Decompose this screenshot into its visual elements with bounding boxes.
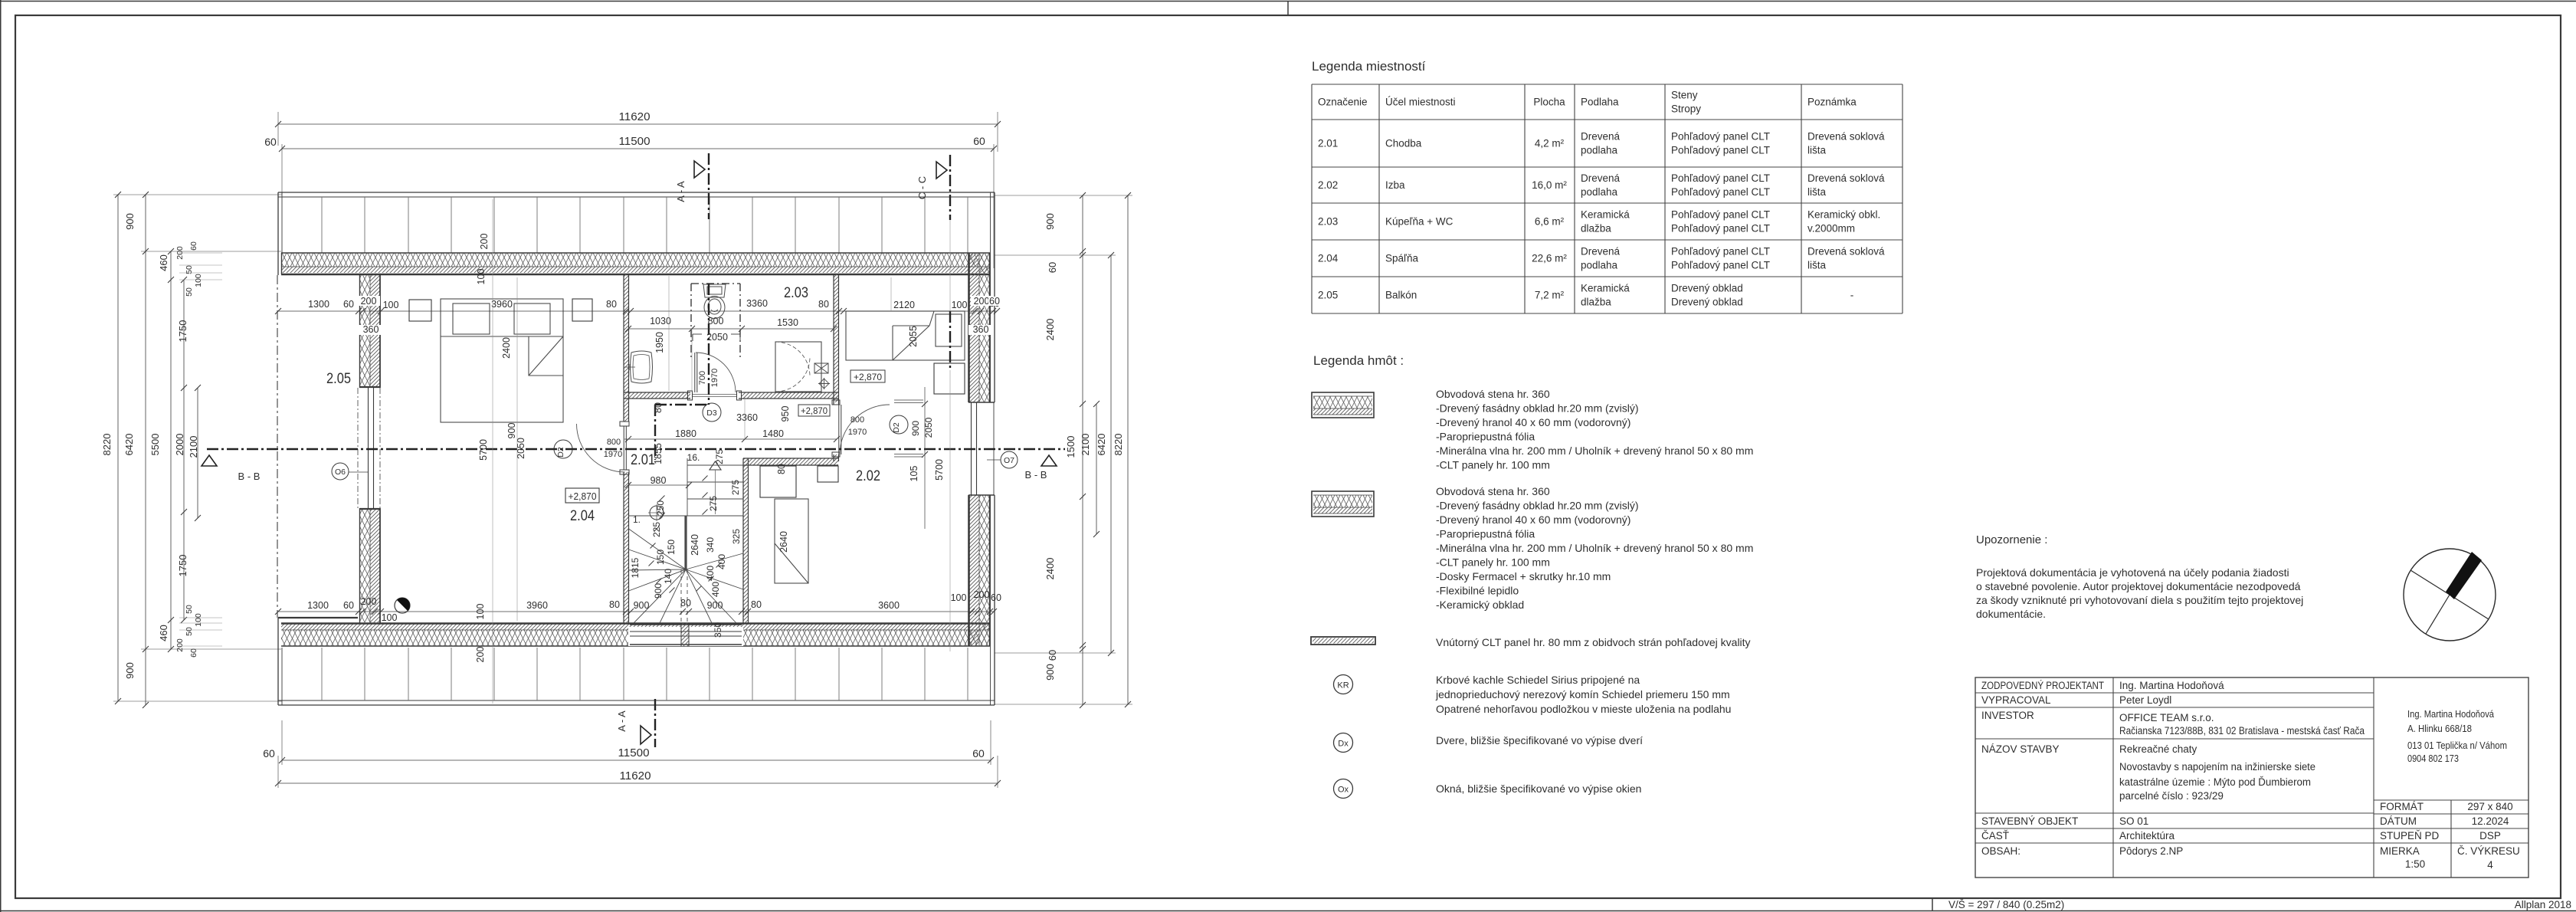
- svg-text:Drevená soklová: Drevená soklová: [1807, 131, 1885, 143]
- svg-text:katastrálne územie : Mýto pod: katastrálne územie : Mýto pod Ďumbierom: [2119, 776, 2311, 788]
- svg-text:-Drevený fasádny obklad hr.20: -Drevený fasádny obklad hr.20 mm (zvislý…: [1436, 500, 1639, 512]
- svg-text:900: 900: [653, 583, 664, 599]
- svg-text:400: 400: [705, 566, 716, 581]
- svg-text:Račianska 7123/88B, 831 02 Bra: Račianska 7123/88B, 831 02 Bratislava - …: [2119, 725, 2365, 736]
- svg-text:100: 100: [383, 300, 399, 310]
- svg-text:50: 50: [185, 627, 194, 636]
- svg-text:80: 80: [653, 402, 664, 413]
- svg-text:360: 360: [363, 324, 379, 335]
- svg-text:Označenie: Označenie: [1318, 97, 1368, 108]
- svg-text:NÁZOV STAVBY: NÁZOV STAVBY: [1981, 743, 2060, 755]
- svg-text:VYPRACOVAL: VYPRACOVAL: [1981, 694, 2051, 706]
- svg-text:Podlaha: Podlaha: [1581, 97, 1619, 108]
- svg-text:1750: 1750: [177, 320, 188, 343]
- svg-text:Keramická: Keramická: [1581, 209, 1630, 221]
- svg-text:MIERKA: MIERKA: [2380, 845, 2420, 857]
- svg-text:Steny: Steny: [1671, 90, 1698, 101]
- svg-text:460: 460: [158, 625, 169, 641]
- svg-text:8220: 8220: [101, 434, 113, 456]
- svg-text:Pohľadový panel CLT: Pohľadový panel CLT: [1671, 172, 1770, 184]
- svg-text:325: 325: [731, 529, 742, 544]
- svg-text:ČASŤ: ČASŤ: [1981, 830, 2009, 841]
- svg-text:-Paropriepustná fólia: -Paropriepustná fólia: [1436, 528, 1535, 540]
- svg-text:3960: 3960: [526, 600, 548, 611]
- svg-text:Legenda miestností: Legenda miestností: [1312, 59, 1426, 74]
- svg-text:Pohľadový panel CLT: Pohľadový panel CLT: [1671, 145, 1770, 156]
- svg-text:Drevená soklová: Drevená soklová: [1807, 246, 1885, 258]
- svg-text:2050: 2050: [706, 332, 728, 343]
- svg-text:4,2 m²: 4,2 m²: [1535, 138, 1565, 149]
- svg-text:v.2000mm: v.2000mm: [1807, 223, 1855, 235]
- svg-text:460: 460: [158, 254, 169, 271]
- svg-text:16.: 16.: [687, 452, 700, 463]
- svg-text:50: 50: [185, 287, 194, 297]
- svg-text:2100: 2100: [1080, 434, 1091, 456]
- svg-text:100: 100: [475, 604, 486, 620]
- svg-text:-: -: [1850, 290, 1854, 301]
- svg-text:1480: 1480: [762, 428, 784, 439]
- svg-text:3360: 3360: [746, 298, 768, 309]
- svg-text:980: 980: [651, 475, 667, 486]
- svg-text:80: 80: [776, 464, 787, 474]
- svg-text:lišta: lišta: [1807, 186, 1826, 198]
- svg-text:200: 200: [361, 596, 377, 607]
- svg-text:2.01: 2.01: [631, 452, 655, 468]
- svg-text:5700: 5700: [934, 459, 945, 481]
- svg-text:150: 150: [666, 540, 677, 555]
- svg-text:-Drevený hranol 40 x 60 mm (vo: -Drevený hranol 40 x 60 mm (vodorovný): [1436, 416, 1630, 428]
- svg-text:Allplan 2018: Allplan 2018: [2515, 899, 2571, 910]
- svg-text:Drevený obklad: Drevený obklad: [1671, 297, 1743, 308]
- svg-text:400: 400: [716, 554, 727, 569]
- svg-text:5700: 5700: [478, 439, 489, 461]
- svg-text:80: 80: [751, 599, 762, 610]
- svg-text:4: 4: [2487, 859, 2493, 871]
- svg-text:Peter Loydl: Peter Loydl: [2119, 694, 2171, 706]
- svg-text:013 01 Teplička n/ Váhom: 013 01 Teplička n/ Váhom: [2407, 740, 2507, 751]
- svg-text:Účel miestnosti: Účel miestnosti: [1385, 97, 1456, 108]
- svg-text:2.04: 2.04: [570, 508, 595, 524]
- svg-text:200: 200: [974, 589, 990, 600]
- svg-text:80: 80: [606, 299, 617, 310]
- svg-text:Balkón: Balkón: [1385, 290, 1417, 301]
- svg-text:800: 800: [607, 438, 621, 447]
- svg-text:1500: 1500: [1065, 436, 1077, 458]
- svg-text:2.01: 2.01: [1318, 138, 1338, 149]
- svg-text:80: 80: [680, 598, 691, 609]
- svg-text:225: 225: [651, 522, 662, 537]
- svg-text:2.03: 2.03: [1318, 216, 1338, 228]
- svg-text:950: 950: [780, 406, 791, 422]
- svg-text:2400: 2400: [501, 337, 512, 359]
- svg-text:za škody vzniknuté pri vyhotov: za škody vzniknuté pri vyhotovovaní diel…: [1976, 594, 2303, 606]
- svg-text:O6: O6: [335, 467, 346, 477]
- svg-text:Dx: Dx: [1338, 740, 1349, 749]
- svg-text:900: 900: [124, 662, 136, 679]
- svg-text:dlažba: dlažba: [1581, 297, 1611, 308]
- svg-text:200: 200: [175, 638, 185, 652]
- svg-text:Spáľňa: Spáľňa: [1385, 253, 1418, 264]
- svg-text:60: 60: [973, 135, 985, 147]
- svg-text:60: 60: [343, 600, 354, 611]
- svg-text:7,2 m²: 7,2 m²: [1535, 290, 1565, 301]
- svg-text:60: 60: [264, 136, 277, 148]
- svg-text:60: 60: [1047, 650, 1058, 661]
- svg-text:Obvodová stena hr. 360: Obvodová stena hr. 360: [1436, 485, 1550, 497]
- svg-text:-Paropriepustná fólia: -Paropriepustná fólia: [1436, 431, 1535, 443]
- svg-text:3360: 3360: [736, 412, 758, 423]
- svg-text:DSP: DSP: [2479, 830, 2501, 841]
- svg-text:Izba: Izba: [1385, 179, 1405, 191]
- svg-text:200: 200: [479, 234, 490, 250]
- svg-text:OBSAH:: OBSAH:: [1981, 845, 2020, 857]
- svg-text:Legenda hmôt :: Legenda hmôt :: [1313, 353, 1404, 368]
- svg-text:0904 802 173: 0904 802 173: [2407, 753, 2459, 764]
- svg-text:350: 350: [713, 622, 723, 638]
- svg-text:B - B: B - B: [238, 471, 261, 482]
- svg-text:1970: 1970: [710, 369, 719, 387]
- svg-text:A - A: A - A: [616, 710, 628, 732]
- svg-text:o stavebné povolenie. Autor pr: o stavebné povolenie. Autor projektovej …: [1976, 580, 2301, 592]
- svg-text:V/Š = 297 / 840 (0.25m2): V/Š = 297 / 840 (0.25m2): [1948, 899, 2064, 910]
- svg-text:800: 800: [708, 316, 724, 326]
- svg-text:A. Hlinku 668/18: A. Hlinku 668/18: [2407, 723, 2472, 734]
- svg-text:DÁTUM: DÁTUM: [2380, 815, 2417, 827]
- svg-text:dlažba: dlažba: [1581, 223, 1611, 235]
- svg-text:1300: 1300: [308, 299, 329, 310]
- svg-text:Drevený obklad: Drevený obklad: [1671, 283, 1743, 294]
- svg-text:1300: 1300: [307, 600, 329, 611]
- svg-text:1530: 1530: [777, 317, 798, 328]
- svg-text:11500: 11500: [618, 747, 650, 759]
- svg-text:FORMÁT: FORMÁT: [2380, 801, 2424, 812]
- svg-text:Vnútorný CLT panel hr. 80 mm z: Vnútorný CLT panel hr. 80 mm z obidvoch …: [1436, 636, 1751, 648]
- svg-text:2.02: 2.02: [1318, 179, 1338, 191]
- svg-text:1030: 1030: [650, 316, 671, 326]
- svg-text:-Flexibilné lepidlo: -Flexibilné lepidlo: [1436, 585, 1519, 597]
- svg-text:3960: 3960: [491, 299, 513, 310]
- svg-text:11620: 11620: [620, 770, 651, 782]
- svg-text:ZODPOVEDNÝ PROJEKTANT: ZODPOVEDNÝ PROJEKTANT: [1981, 680, 2104, 691]
- svg-text:+2,870: +2,870: [801, 407, 828, 416]
- svg-text:2100: 2100: [188, 436, 199, 458]
- svg-text:D2: D2: [892, 422, 901, 433]
- svg-text:Pôdorys 2.NP: Pôdorys 2.NP: [2119, 845, 2183, 857]
- svg-text:900: 900: [506, 423, 517, 439]
- svg-text:Drevená soklová: Drevená soklová: [1807, 172, 1885, 184]
- svg-text:700: 700: [698, 371, 707, 385]
- svg-text:-Keramický obklad: -Keramický obklad: [1436, 599, 1524, 611]
- svg-text:140: 140: [663, 569, 673, 584]
- svg-text:200: 200: [361, 296, 377, 307]
- svg-text:1.: 1.: [633, 514, 641, 525]
- svg-text:900: 900: [634, 600, 650, 611]
- svg-text:16,0 m²: 16,0 m²: [1532, 179, 1567, 191]
- svg-text:900: 900: [1044, 664, 1056, 681]
- svg-text:2.04: 2.04: [1318, 253, 1339, 264]
- svg-text:275: 275: [708, 496, 719, 511]
- svg-text:-Drevený hranol 40 x 60 mm (vo: -Drevený hranol 40 x 60 mm (vodorovný): [1436, 513, 1630, 526]
- svg-text:60: 60: [263, 747, 275, 759]
- svg-text:60: 60: [991, 592, 1001, 603]
- svg-text:Poznámka: Poznámka: [1807, 97, 1857, 108]
- svg-text:Rekreačné chaty: Rekreačné chaty: [2119, 743, 2197, 755]
- svg-text:Pohľadový panel CLT: Pohľadový panel CLT: [1671, 260, 1770, 271]
- svg-text:Č. VÝKRESU: Č. VÝKRESU: [2457, 845, 2520, 857]
- svg-text:2.02: 2.02: [856, 468, 880, 484]
- svg-text:Dvere, bližšie špecifikované v: Dvere, bližšie špecifikované vo výpise d…: [1436, 734, 1643, 746]
- svg-text:340: 340: [705, 537, 716, 553]
- svg-text:100: 100: [476, 269, 487, 285]
- svg-text:100: 100: [951, 592, 967, 603]
- svg-text:80: 80: [818, 299, 829, 310]
- svg-text:150: 150: [655, 549, 666, 565]
- svg-text:jednoprieduchový nerezový komí: jednoprieduchový nerezový komín Schiedel…: [1435, 688, 1730, 700]
- svg-text:Ing. Martina Hodoňová: Ing. Martina Hodoňová: [2407, 708, 2495, 720]
- svg-text:900: 900: [124, 213, 136, 230]
- svg-text:Pohľadový panel CLT: Pohľadový panel CLT: [1671, 131, 1770, 143]
- svg-text:100: 100: [382, 612, 398, 623]
- svg-text:Pohľadový panel CLT: Pohľadový panel CLT: [1671, 246, 1770, 258]
- svg-text:200: 200: [475, 647, 486, 663]
- svg-text:275: 275: [730, 480, 741, 495]
- svg-text:lišta: lišta: [1807, 260, 1826, 271]
- svg-text:OFFICE TEAM s.r.o.: OFFICE TEAM s.r.o.: [2119, 712, 2214, 723]
- svg-text:1950: 1950: [654, 332, 665, 353]
- svg-text:60: 60: [343, 299, 354, 310]
- svg-text:Upozornenie :: Upozornenie :: [1976, 533, 2047, 546]
- svg-text:1970: 1970: [604, 450, 622, 459]
- svg-text:2640: 2640: [690, 534, 700, 556]
- svg-text:Opatrené nehorľavou podložkou: Opatrené nehorľavou podložkou v mieste u…: [1436, 703, 1731, 715]
- svg-text:Drevená: Drevená: [1581, 131, 1621, 143]
- svg-text:900: 900: [1044, 213, 1056, 230]
- svg-text:1970: 1970: [848, 428, 867, 437]
- svg-text:2.05: 2.05: [1318, 290, 1338, 301]
- svg-text:100: 100: [952, 300, 968, 310]
- svg-text:Drevená: Drevená: [1581, 172, 1621, 184]
- svg-text:podlaha: podlaha: [1581, 260, 1618, 271]
- svg-text:STUPEŇ PD: STUPEŇ PD: [2380, 830, 2440, 841]
- svg-text:Okná, bližšie špecifikované vo: Okná, bližšie špecifikované vo výpise ok…: [1436, 782, 1641, 795]
- svg-text:Krbové kachle Schiedel Sirius: Krbové kachle Schiedel Sirius pripojené …: [1436, 674, 1640, 686]
- svg-text:podlaha: podlaha: [1581, 186, 1618, 198]
- svg-text:1:50: 1:50: [2405, 858, 2425, 870]
- svg-text:Plocha: Plocha: [1533, 97, 1565, 108]
- svg-text:B - B: B - B: [1025, 469, 1047, 481]
- svg-text:Ox: Ox: [1338, 786, 1349, 795]
- svg-text:900: 900: [707, 600, 723, 611]
- svg-text:2.05: 2.05: [326, 371, 351, 387]
- svg-text:297 x 840: 297 x 840: [2467, 801, 2512, 812]
- svg-text:Chodba: Chodba: [1385, 138, 1422, 149]
- svg-text:STAVEBNÝ OBJEKT: STAVEBNÝ OBJEKT: [1981, 815, 2078, 827]
- svg-text:2.03: 2.03: [784, 285, 808, 301]
- svg-text:60: 60: [189, 241, 198, 251]
- svg-text:Pohľadový panel CLT: Pohľadový panel CLT: [1671, 223, 1770, 235]
- svg-text:6,6 m²: 6,6 m²: [1535, 216, 1565, 228]
- svg-text:60: 60: [1047, 262, 1058, 273]
- svg-text:-CLT panely hr. 100 mm: -CLT panely hr. 100 mm: [1436, 459, 1550, 471]
- svg-text:dokumentácie.: dokumentácie.: [1976, 608, 2046, 620]
- svg-text:80: 80: [609, 599, 620, 610]
- svg-text:-CLT panely hr. 100 mm: -CLT panely hr. 100 mm: [1436, 556, 1550, 569]
- svg-text:2120: 2120: [893, 300, 915, 310]
- svg-text:8220: 8220: [1113, 434, 1124, 456]
- svg-text:-Dosky Fermacel + skrutky hr.1: -Dosky Fermacel + skrutky hr.10 mm: [1436, 570, 1611, 582]
- svg-text:22,6 m²: 22,6 m²: [1532, 253, 1567, 264]
- svg-text:100: 100: [194, 274, 203, 287]
- svg-text:C - C: C - C: [916, 176, 928, 199]
- svg-text:50: 50: [185, 605, 194, 614]
- svg-text:-Drevený fasádny obklad hr.20: -Drevený fasádny obklad hr.20 mm (zvislý…: [1436, 402, 1639, 415]
- svg-text:200: 200: [974, 296, 990, 307]
- svg-text:11500: 11500: [619, 136, 651, 148]
- svg-text:11620: 11620: [619, 111, 651, 123]
- svg-text:2640: 2640: [778, 531, 789, 553]
- svg-text:275: 275: [714, 449, 725, 464]
- svg-text:1750: 1750: [177, 555, 188, 577]
- svg-text:1815: 1815: [630, 557, 641, 578]
- svg-text:-Minerálna vlna hr. 200 mm / U: -Minerálna vlna hr. 200 mm / Uholník + d…: [1436, 542, 1753, 554]
- svg-text:2000: 2000: [174, 434, 185, 456]
- svg-text:5500: 5500: [149, 434, 161, 456]
- svg-text:A - A: A - A: [675, 181, 687, 202]
- svg-text:6420: 6420: [1096, 434, 1107, 456]
- svg-text:parcelné číslo : 923/29: parcelné číslo : 923/29: [2119, 790, 2224, 802]
- svg-text:Pohľadový panel CLT: Pohľadový panel CLT: [1671, 186, 1770, 198]
- svg-text:2400: 2400: [1044, 558, 1056, 580]
- svg-text:3600: 3600: [878, 600, 900, 611]
- svg-text:Keramická: Keramická: [1581, 283, 1630, 294]
- svg-text:800: 800: [850, 415, 864, 425]
- svg-text:SO 01: SO 01: [2119, 815, 2148, 827]
- svg-text:360: 360: [973, 324, 989, 335]
- svg-text:12.2024: 12.2024: [2472, 815, 2509, 827]
- svg-text:Drevená: Drevená: [1581, 246, 1621, 258]
- svg-text:O7: O7: [1004, 456, 1014, 465]
- svg-text:Architektúra: Architektúra: [2119, 830, 2175, 841]
- svg-text:105: 105: [909, 466, 919, 482]
- svg-text:podlaha: podlaha: [1581, 145, 1618, 156]
- svg-text:2400: 2400: [1044, 319, 1056, 341]
- svg-text:60: 60: [189, 648, 198, 658]
- svg-text:INVESTOR: INVESTOR: [1981, 710, 2034, 721]
- svg-text:KR: KR: [1337, 681, 1349, 691]
- svg-text:Keramický obkl.: Keramický obkl.: [1807, 209, 1880, 221]
- svg-text:6420: 6420: [123, 434, 135, 456]
- svg-text:-Minerálna vlna hr. 200 mm / U: -Minerálna vlna hr. 200 mm / Uholník + d…: [1436, 445, 1753, 457]
- svg-text:1855: 1855: [653, 443, 664, 464]
- svg-text:Projektová dokumentácia je vyh: Projektová dokumentácia je vyhotovená na…: [1976, 566, 2289, 579]
- svg-text:1880: 1880: [675, 428, 696, 439]
- svg-text:60: 60: [989, 296, 1000, 307]
- svg-text:400: 400: [710, 582, 721, 597]
- svg-text:Kúpeľňa + WC: Kúpeľňa + WC: [1385, 216, 1454, 228]
- svg-text:+2,870: +2,870: [854, 373, 882, 382]
- svg-text:Ing. Martina Hodoňová: Ing. Martina Hodoňová: [2119, 680, 2224, 691]
- svg-text:lišta: lišta: [1807, 145, 1826, 156]
- svg-text:100: 100: [194, 613, 203, 627]
- svg-text:Stropy: Stropy: [1671, 103, 1701, 115]
- svg-text:900: 900: [910, 421, 921, 436]
- svg-text:60: 60: [972, 747, 985, 759]
- svg-text:Obvodová stena hr. 360: Obvodová stena hr. 360: [1436, 388, 1550, 400]
- svg-text:2055: 2055: [908, 326, 919, 347]
- svg-text:Pohľadový panel CLT: Pohľadový panel CLT: [1671, 209, 1770, 221]
- svg-text:Novostavby s napojením na inži: Novostavby s napojením na inžinierske si…: [2119, 761, 2315, 773]
- svg-text:250: 250: [655, 500, 666, 516]
- svg-text:+2,870: +2,870: [569, 491, 597, 502]
- svg-text:D3: D3: [706, 408, 717, 418]
